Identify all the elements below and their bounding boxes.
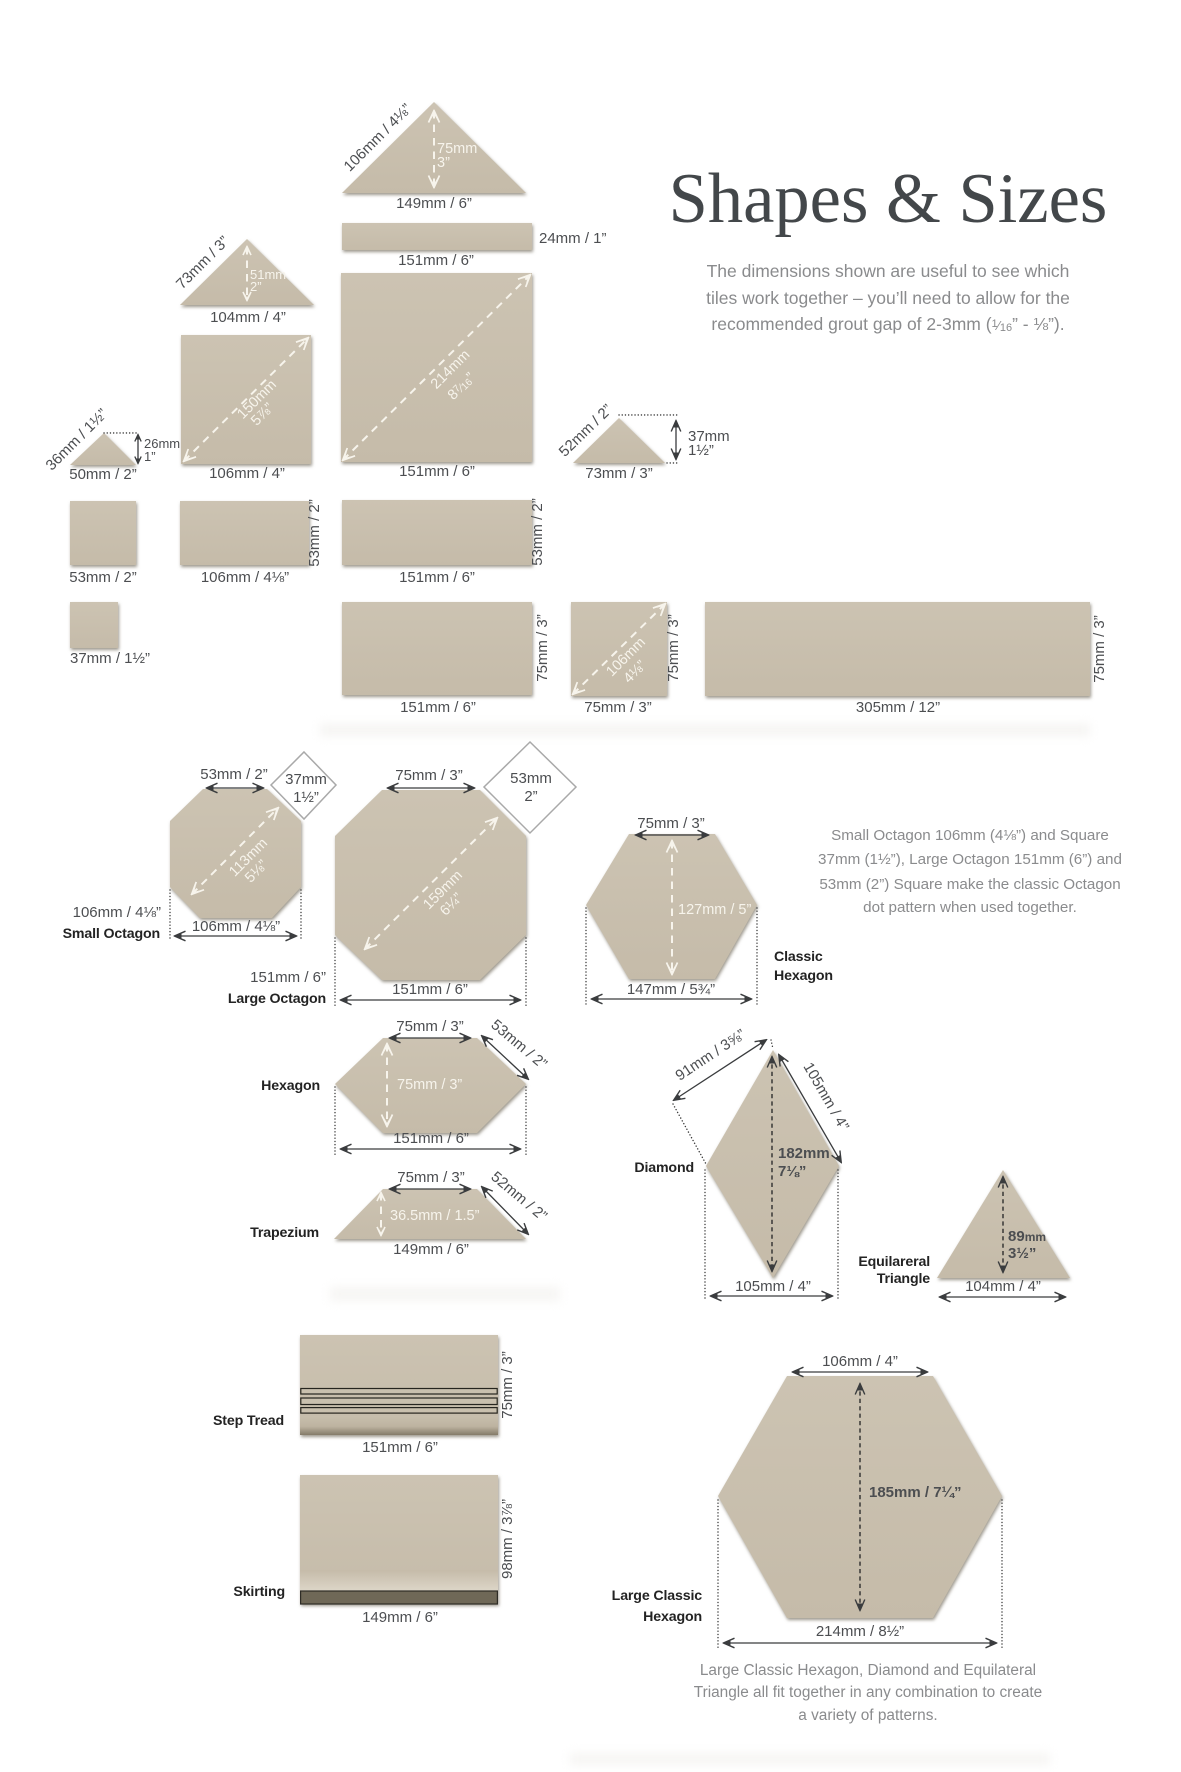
svg-text:105mm / 4”: 105mm / 4”	[735, 1278, 811, 1295]
svg-text:tiles work together – you’ll n: tiles work together – you’ll need to all…	[706, 288, 1070, 308]
svg-text:Hexagon: Hexagon	[261, 1078, 320, 1094]
svg-text:75mm / 3”: 75mm / 3”	[395, 767, 463, 784]
svg-text:37mm (1½”), Large Octagon 151m: 37mm (1½”), Large Octagon 151mm (6”) and	[818, 851, 1122, 868]
svg-text:Hexagon: Hexagon	[774, 968, 833, 984]
svg-text:73mm / 3”: 73mm / 3”	[585, 465, 653, 482]
svg-text:151mm / 6”: 151mm / 6”	[400, 699, 476, 716]
svg-text:106mm / 4⅛”: 106mm / 4⅛”	[73, 904, 161, 921]
svg-text:53mm (2”) Square make the clas: 53mm (2”) Square make the classic Octago…	[819, 876, 1120, 893]
svg-text:106mm / 4”: 106mm / 4”	[209, 465, 285, 482]
svg-text:75mm / 3”: 75mm / 3”	[665, 614, 682, 682]
svg-text:Equilareral: Equilareral	[858, 1254, 930, 1270]
svg-text:149mm / 6”: 149mm / 6”	[393, 1241, 469, 1258]
svg-text:75mm / 3”: 75mm / 3”	[534, 614, 551, 682]
svg-text:1”: 1”	[144, 449, 156, 464]
svg-text:dot pattern when used together: dot pattern when used together.	[863, 899, 1077, 916]
svg-text:Large Octagon: Large Octagon	[228, 991, 326, 1007]
svg-text:151mm / 6”: 151mm / 6”	[399, 569, 475, 586]
svg-text:24mm / 1”: 24mm / 1”	[539, 230, 607, 247]
svg-text:75mm / 3”: 75mm / 3”	[396, 1018, 464, 1035]
svg-text:151mm / 6”: 151mm / 6”	[393, 1130, 469, 1147]
svg-text:37mm / 1½”: 37mm / 1½”	[70, 650, 150, 667]
svg-text:151mm / 6”: 151mm / 6”	[399, 463, 475, 480]
svg-text:75mm / 3”: 75mm / 3”	[397, 1077, 462, 1093]
svg-text:106mm / 4⅛”: 106mm / 4⅛”	[192, 918, 280, 935]
svg-text:127mm / 5”: 127mm / 5”	[678, 902, 751, 918]
svg-text:151mm / 6”: 151mm / 6”	[250, 969, 326, 986]
svg-text:2”: 2”	[250, 279, 262, 294]
svg-text:Shapes & Sizes: Shapes & Sizes	[669, 160, 1108, 238]
svg-text:104mm / 4”: 104mm / 4”	[210, 309, 286, 326]
svg-text:104mm / 4”: 104mm / 4”	[965, 1278, 1041, 1295]
svg-text:149mm / 6”: 149mm / 6”	[362, 1609, 438, 1626]
svg-text:a variety of patterns.: a variety of patterns.	[798, 1707, 937, 1724]
svg-text:147mm / 5¾”: 147mm / 5¾”	[627, 981, 715, 998]
svg-text:75mm / 3”: 75mm / 3”	[499, 1351, 516, 1419]
svg-text:53mm / 2”: 53mm / 2”	[529, 498, 546, 566]
svg-text:106mm / 4⅛”: 106mm / 4⅛”	[201, 569, 289, 586]
svg-text:98mm / 3⅞”: 98mm / 3⅞”	[499, 1499, 516, 1579]
svg-text:7⅛”: 7⅛”	[778, 1163, 806, 1180]
svg-text:106mm / 4”: 106mm / 4”	[822, 1353, 898, 1370]
svg-text:Triangle all fit together in a: Triangle all fit together in any combina…	[694, 1684, 1042, 1701]
svg-text:Step Tread: Step Tread	[213, 1413, 284, 1429]
svg-text:2”: 2”	[524, 788, 537, 805]
svg-text:Classic: Classic	[774, 949, 823, 965]
svg-text:151mm / 6”: 151mm / 6”	[362, 1439, 438, 1456]
svg-text:Small Octagon: Small Octagon	[63, 926, 160, 942]
svg-text:The dimensions shown are usefu: The dimensions shown are useful to see w…	[707, 261, 1070, 281]
svg-text:53mm: 53mm	[510, 770, 552, 787]
svg-text:recommended grout gap of 2-3mm: recommended grout gap of 2-3mm (1⁄16” - …	[711, 314, 1064, 334]
svg-text:Large Classic Hexagon, Diamond: Large Classic Hexagon, Diamond and Equil…	[700, 1662, 1036, 1679]
svg-text:75mm / 3”: 75mm / 3”	[397, 1169, 465, 1186]
svg-text:53mm / 2”: 53mm / 2”	[200, 766, 268, 783]
svg-text:Diamond: Diamond	[634, 1160, 694, 1176]
svg-text:75mm / 3”: 75mm / 3”	[637, 815, 705, 832]
svg-text:3½”: 3½”	[1008, 1245, 1036, 1262]
svg-text:3”: 3”	[437, 155, 450, 171]
svg-text:149mm / 6”: 149mm / 6”	[396, 195, 472, 212]
svg-text:36.5mm / 1.5”: 36.5mm / 1.5”	[390, 1208, 480, 1224]
svg-text:Skirting: Skirting	[233, 1584, 285, 1600]
svg-text:151mm / 6”: 151mm / 6”	[392, 981, 468, 998]
svg-text:75mm / 3”: 75mm / 3”	[1091, 615, 1108, 683]
svg-text:Triangle: Triangle	[877, 1271, 930, 1287]
svg-text:89mm: 89mm	[1008, 1228, 1046, 1245]
svg-text:75mm / 3”: 75mm / 3”	[584, 699, 652, 716]
svg-text:50mm / 2”: 50mm / 2”	[69, 466, 137, 483]
svg-text:1½”: 1½”	[293, 789, 319, 806]
svg-text:53mm / 2”: 53mm / 2”	[306, 499, 323, 567]
svg-text:305mm / 12”: 305mm / 12”	[856, 699, 940, 716]
svg-text:214mm / 8½”: 214mm / 8½”	[816, 1623, 904, 1640]
svg-text:37mm: 37mm	[285, 771, 327, 788]
svg-text:1½”: 1½”	[688, 442, 714, 459]
svg-text:53mm / 2”: 53mm / 2”	[69, 569, 137, 586]
svg-text:Hexagon: Hexagon	[643, 1609, 702, 1625]
svg-text:185mm / 7¼”: 185mm / 7¼”	[869, 1484, 962, 1501]
svg-text:Trapezium: Trapezium	[250, 1225, 319, 1241]
svg-text:182mm: 182mm	[778, 1145, 830, 1162]
svg-text:Large Classic: Large Classic	[612, 1588, 703, 1604]
svg-text:Small Octagon 106mm (4⅛”) and: Small Octagon 106mm (4⅛”) and Square	[831, 827, 1109, 844]
svg-text:151mm / 6”: 151mm / 6”	[398, 252, 474, 269]
